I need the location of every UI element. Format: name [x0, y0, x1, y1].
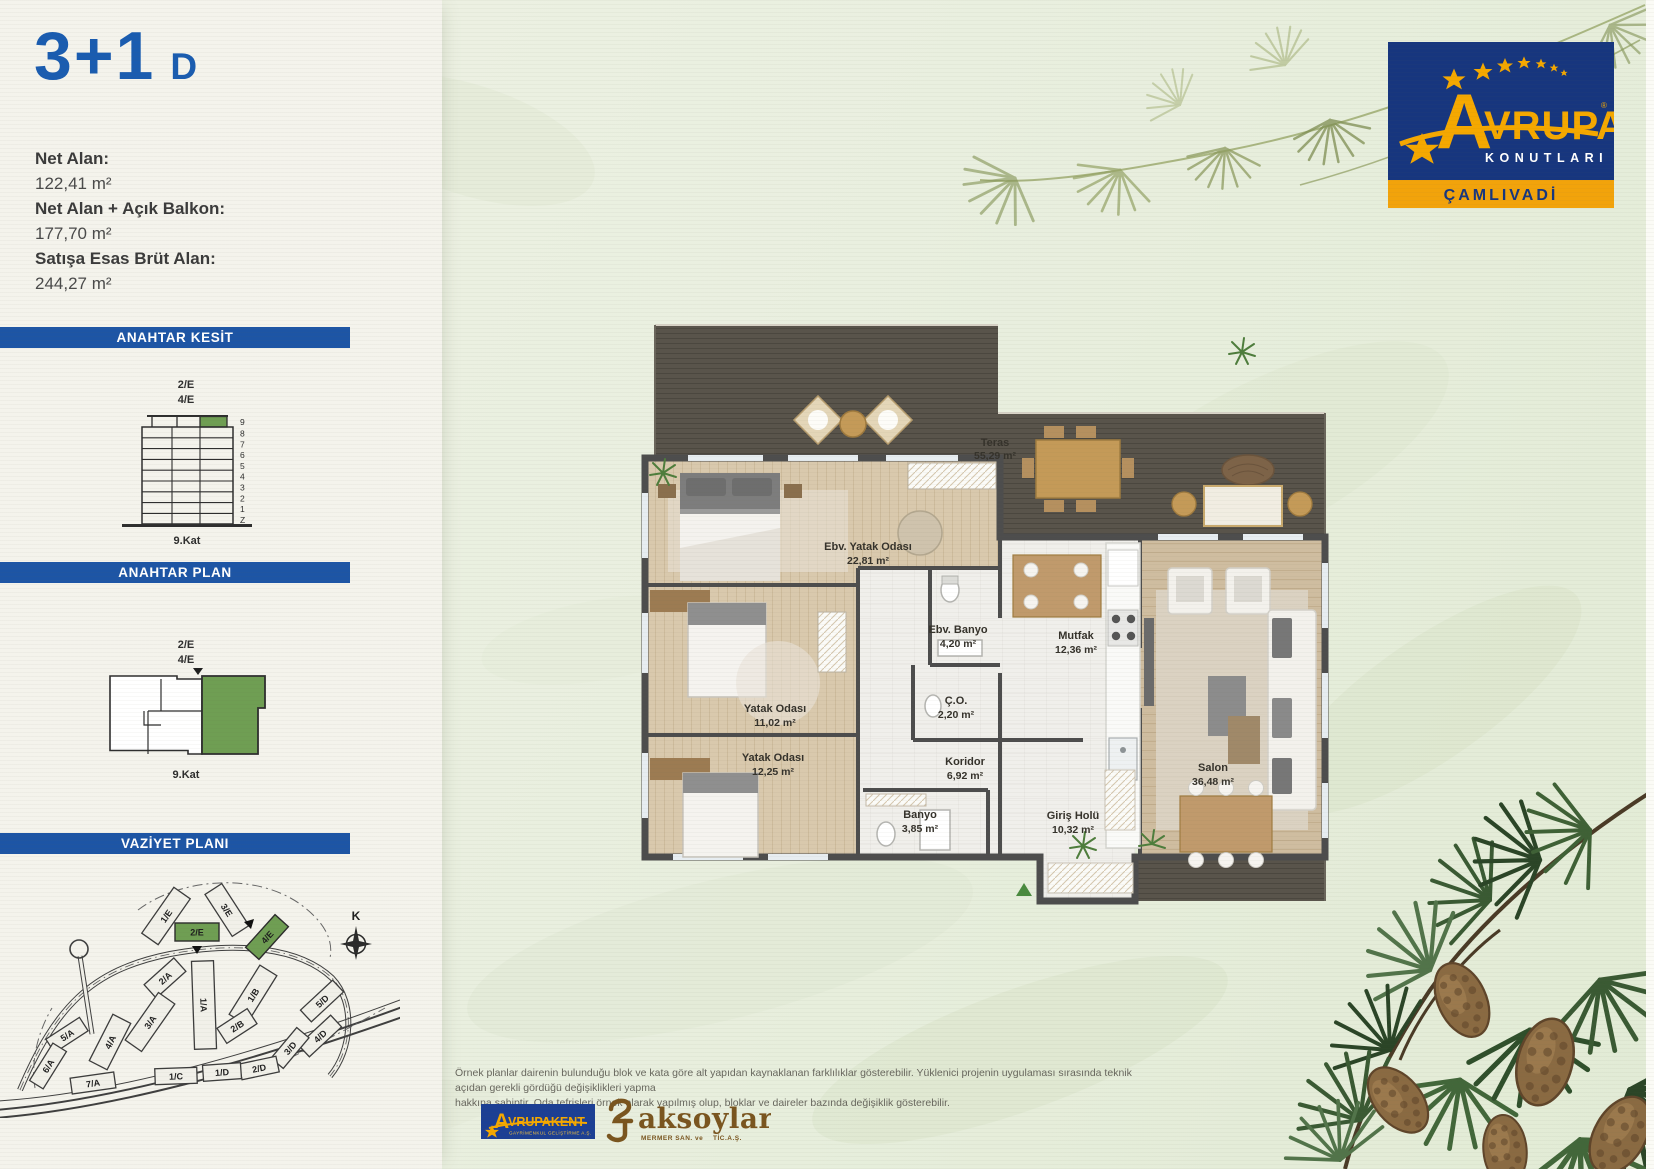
- aksoylar-sub2: TİC.A.Ş.: [713, 1134, 742, 1142]
- site-plan: 1/E 3/E 2/E 4/E 2/A 1/A 1/B 2/B 3/A 4/A …: [0, 858, 400, 1118]
- room-area: 10,32 m²: [1052, 824, 1095, 836]
- room-area: 11,02 m²: [754, 717, 796, 729]
- floor-plan: Teras 55,29 m² Ebv. Yatak Odası 22,81 m²…: [628, 318, 1330, 906]
- stat-value: 177,70 m²: [35, 221, 365, 246]
- brochure-page: 3+1 D Net Alan: 122,41 m² Net Alan + Açı…: [0, 0, 1654, 1169]
- stat-label: Net Alan:: [35, 146, 365, 171]
- keyplan-caption: 9.Kat: [173, 769, 200, 781]
- site-building-label: 1/C: [169, 1071, 184, 1082]
- room-name: Yatak Odası: [744, 703, 806, 715]
- section-header-anahtar-kesit: ANAHTAR KESİT: [0, 327, 350, 348]
- kesit-caption: 9.Kat: [174, 535, 201, 547]
- room-name: Salon: [1198, 762, 1228, 774]
- svg-text:1: 1: [240, 504, 245, 514]
- room-name: Mutfak: [1058, 630, 1094, 642]
- svg-text:9: 9: [240, 417, 245, 427]
- compass-label: K: [352, 909, 361, 923]
- svg-text:4: 4: [240, 472, 245, 482]
- room-area: 55,29 m²: [974, 450, 1017, 462]
- room-area: 6,92 m²: [947, 770, 984, 782]
- logo-rest: VRUPA: [1484, 104, 1614, 148]
- avrupakent-logo: A VRUPAKENT GAYRİMENKUL GELİŞTİRME A.Ş.: [481, 1104, 595, 1139]
- avrupakent-sub: GAYRİMENKUL GELİŞTİRME A.Ş.: [509, 1130, 592, 1136]
- aksoylar-sub1: MERMER SAN. ve: [641, 1135, 703, 1142]
- page-edge-strip: [1646, 0, 1654, 1169]
- unit-variant: D: [170, 48, 197, 85]
- room-area: 3,85 m²: [902, 823, 939, 835]
- section-header-vaziyet-plani: VAZİYET PLANI: [0, 833, 350, 854]
- disclaimer-line-1: Örnek planlar dairenin bulunduğu blok ve…: [455, 1066, 1145, 1096]
- svg-text:2: 2: [240, 493, 245, 503]
- stat-value: 122,41 m²: [35, 171, 365, 196]
- highlighted-floor-cell: [200, 417, 227, 428]
- stat-label: Net Alan + Açık Balkon:: [35, 196, 365, 221]
- stat-value: 244,27 m²: [35, 271, 365, 296]
- svg-text:6: 6: [240, 450, 245, 460]
- site-building-label: 1/A: [198, 998, 209, 1013]
- keyplan-block-label-bottom: 4/E: [178, 654, 195, 666]
- avrupakent-initial: A: [494, 1110, 509, 1133]
- site-building-label: 7/A: [85, 1078, 101, 1090]
- site-building-label-highlighted: 2/E: [190, 928, 204, 938]
- section-header-anahtar-plan: ANAHTAR PLAN: [0, 562, 350, 583]
- site-building-label: 1/D: [215, 1067, 230, 1078]
- room-name: Yatak Odası: [742, 752, 804, 764]
- room-area: 22,81 m²: [847, 555, 890, 567]
- svg-text:3: 3: [240, 483, 245, 493]
- logo-registered: ®: [1601, 101, 1607, 110]
- keyplan-arrow: [193, 668, 203, 675]
- keyplan-block-label-top: 2/E: [178, 639, 195, 651]
- logo-project: ÇAMLIVADİ: [1444, 186, 1559, 204]
- building-section-drawing: [122, 416, 252, 526]
- key-plan-diagram: 2/E 4/E 9.Kat: [40, 635, 320, 790]
- room-area: 4,20 m²: [940, 638, 977, 650]
- logo-sub: KONUTLARI: [1485, 151, 1608, 165]
- room-name: Ç.O.: [945, 695, 968, 707]
- room-name: Ebv. Yatak Odası: [824, 541, 912, 553]
- pine-branch-bottom-right: [1277, 780, 1654, 1169]
- aksoylar-name: aksoylar: [638, 1102, 771, 1135]
- brand-logo: A VRUPA ® KONUTLARI ÇAMLIVADİ: [1388, 42, 1614, 208]
- unit-title: 3+1 D: [34, 22, 197, 90]
- floor-numbers: 9 8 7 6 5 4 3 2 1 Z: [240, 417, 245, 525]
- key-section-diagram: 2/E 4/E 9 8 7 6 5 4 3: [40, 360, 320, 560]
- stat-label: Satışa Esas Brüt Alan:: [35, 246, 365, 271]
- room-name: Koridor: [945, 756, 985, 768]
- aksoylar-glyph: [609, 1101, 631, 1140]
- svg-text:Z: Z: [240, 515, 245, 525]
- room-name: Teras: [981, 437, 1010, 449]
- svg-text:5: 5: [240, 461, 245, 471]
- unit-type: 3+1: [34, 22, 155, 90]
- room-name: Giriş Holü: [1047, 810, 1100, 822]
- keyplan-outline: [110, 676, 202, 754]
- site-buildings: 1/E 3/E 2/E 4/E 2/A 1/A 1/B 2/B 3/A 4/A …: [30, 884, 344, 1094]
- entrance-arrow: [1016, 883, 1032, 896]
- kesit-block-label-bottom: 4/E: [178, 394, 195, 406]
- room-area: 12,36 m²: [1055, 644, 1098, 656]
- svg-text:7: 7: [240, 439, 245, 449]
- area-stats: Net Alan: 122,41 m² Net Alan + Açık Balk…: [35, 146, 365, 296]
- room-area: 36,48 m²: [1192, 776, 1235, 788]
- room-name: Ebv. Banyo: [928, 624, 987, 636]
- compass-icon: K: [340, 909, 372, 960]
- aksoylar-logo: aksoylar MERMER SAN. ve TİC.A.Ş.: [601, 1094, 771, 1146]
- room-area: 2,20 m²: [938, 709, 975, 721]
- room-area: 12,25 m²: [752, 766, 795, 778]
- room-name: Banyo: [903, 809, 937, 821]
- kesit-block-label-top: 2/E: [178, 379, 195, 391]
- keyplan-highlighted-unit: [202, 676, 265, 754]
- svg-text:8: 8: [240, 429, 245, 439]
- avrupakent-rest: VRUPAKENT: [508, 1115, 585, 1129]
